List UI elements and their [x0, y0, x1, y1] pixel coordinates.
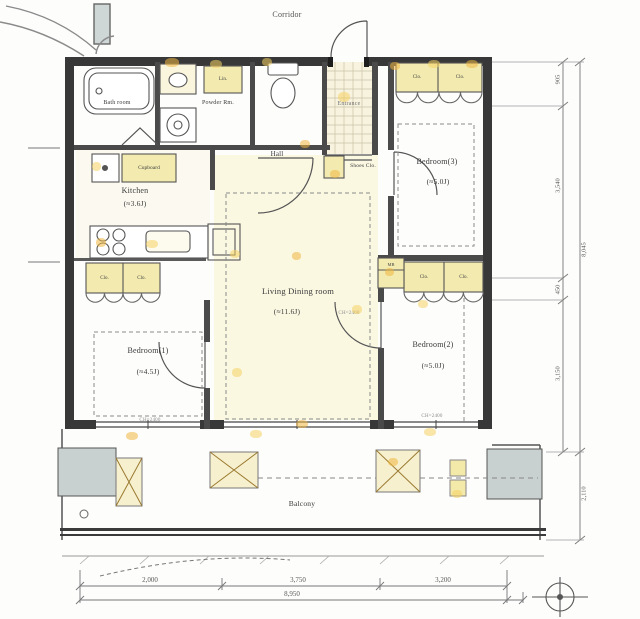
highlight-mark	[385, 268, 394, 276]
hanger-scallop	[396, 92, 482, 103]
balcony-label: Balcony	[272, 500, 332, 509]
entrance-label: Entrance	[326, 101, 372, 108]
highlight-mark	[165, 58, 179, 67]
living-ch: CH=2400	[328, 311, 370, 317]
dim-bottom-3: 3,200	[413, 576, 473, 584]
closet-label: Clo.	[86, 263, 123, 293]
toilet-tank	[268, 63, 298, 75]
hanger-scallop	[404, 292, 483, 302]
bedroom1-size: (≈4.5J)	[113, 368, 183, 377]
bedroom3-label: Bedroom(3)	[396, 157, 478, 166]
closet-label: Clo.	[123, 263, 160, 293]
highlight-mark	[390, 62, 400, 70]
highlight-mark	[428, 60, 440, 68]
dim-bottom-2: 3,750	[268, 576, 328, 584]
washing-machine	[160, 108, 196, 142]
shoes-label: Shoes Clo.	[344, 163, 382, 169]
highlight-mark	[300, 140, 310, 148]
closet-label: Clo.	[404, 262, 444, 292]
highlight-mark	[232, 368, 242, 377]
structural-column	[58, 448, 116, 496]
living-size: (≈11.6J)	[252, 308, 322, 317]
dim-right-1: 905	[555, 58, 562, 102]
compass-icon	[532, 577, 588, 617]
highlight-mark	[146, 240, 158, 248]
highlight-mark	[424, 428, 436, 436]
floorplan-page: Corridor Bath room Powder Rm. Hall Entra…	[0, 0, 640, 619]
highlight-mark	[210, 60, 222, 68]
highlight-mark	[230, 250, 240, 258]
corridor-label: Corridor	[252, 10, 322, 19]
highlight-mark	[330, 170, 340, 178]
highlight-mark	[338, 92, 350, 102]
structural-column	[487, 449, 542, 499]
highlight-mark	[126, 432, 138, 440]
dim-right-3: 450	[555, 268, 562, 312]
kitchen-label: Kitchen	[100, 186, 170, 195]
dim-balcony-depth: 2,110	[581, 472, 588, 516]
highlight-mark	[250, 430, 262, 438]
bath-label: Bath room	[100, 100, 134, 107]
highlight-mark	[92, 162, 101, 171]
highlight-mark	[296, 420, 308, 428]
highlight-mark	[96, 238, 106, 247]
linen-label: Lin.	[204, 66, 242, 93]
hall-label: Hall	[262, 150, 292, 158]
cupboard-label: Cupboard	[122, 154, 176, 182]
kitchen-size: (≈3.6J)	[100, 200, 170, 209]
powder-label: Powder Rm.	[198, 100, 238, 107]
closet-label: Clo.	[444, 262, 483, 292]
highlight-mark	[388, 458, 398, 466]
bathtub	[84, 68, 154, 114]
bedroom2-label: Bedroom(2)	[390, 340, 476, 349]
toilet-bowl	[271, 78, 295, 108]
highlight-mark	[352, 305, 362, 314]
hanger-scallop	[86, 293, 160, 302]
dim-right-4: 3,150	[555, 352, 562, 396]
highlight-mark	[466, 60, 478, 68]
living-label: Living Dining room	[232, 287, 364, 297]
highlight-mark	[292, 252, 301, 260]
bedroom2-ch: CH=2400	[408, 414, 456, 420]
highlight-mark	[452, 490, 462, 498]
dim-bottom-1: 2,000	[120, 576, 180, 584]
bedroom1-label: Bedroom(1)	[98, 346, 198, 355]
dim-right-2: 3,540	[555, 164, 562, 208]
bedroom3-size: (≈5.0J)	[408, 178, 468, 187]
bedroom2-size: (≈5.0J)	[402, 362, 464, 371]
highlight-mark	[418, 300, 428, 308]
adjacent-structure	[0, 4, 114, 56]
highlight-mark	[262, 58, 272, 66]
bedroom1-ch: CH=2400	[126, 418, 174, 424]
dim-bottom-total: 8,950	[262, 590, 322, 598]
dim-right-total: 8,045	[581, 228, 588, 272]
